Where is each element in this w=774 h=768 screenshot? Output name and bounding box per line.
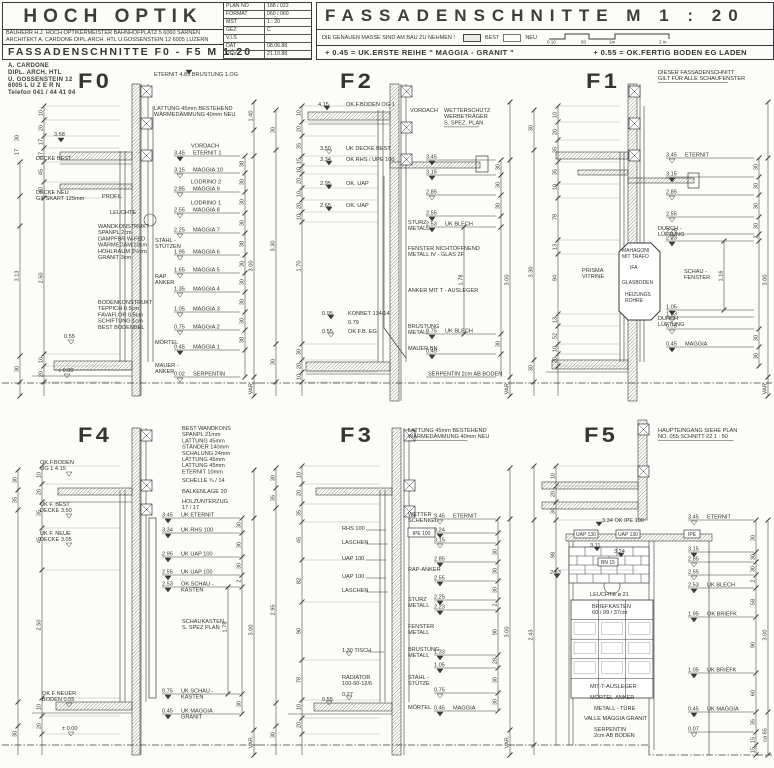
svg-text:10: 10 xyxy=(39,110,45,116)
svg-text:3.15: 3.15 xyxy=(666,172,677,178)
svg-text:BEST WANDKONSSPANPL 21mmLATTUN: BEST WANDKONSSPANPL 21mmLATTUNG 45mmSTÄN… xyxy=(182,426,231,475)
svg-text:30: 30 xyxy=(15,135,21,141)
svg-text:35: 35 xyxy=(297,143,303,149)
dimension-chains: 30352.9530102035458290781020303030290283… xyxy=(271,464,513,758)
svg-text:ETERNIT: ETERNIT xyxy=(707,515,732,521)
svg-text:3.00: 3.00 xyxy=(249,625,255,636)
svg-text:MÖRTEL-ANKER: MÖRTEL-ANKER xyxy=(590,694,634,701)
svg-text:20: 20 xyxy=(39,125,45,131)
svg-text:OK. UAP: OK. UAP xyxy=(346,203,369,209)
svg-text:DIESER FASSADENSCHNITTGILT FÜR: DIESER FASSADENSCHNITTGILT FÜR ALLE SCHA… xyxy=(658,70,745,82)
svg-text:2.50: 2.50 xyxy=(37,620,43,631)
elevation-rows: 3.45VORDACHETERNIT 13.15MAGGIA 102.85LOD… xyxy=(174,144,240,383)
svg-text:0.45: 0.45 xyxy=(162,709,173,715)
svg-text:30: 30 xyxy=(237,522,243,528)
svg-text:KONBET 134/14: KONBET 134/14 xyxy=(348,311,390,317)
svg-text:IFA: IFA xyxy=(630,265,638,271)
svg-text:DECKE BEST: DECKE BEST xyxy=(36,156,72,162)
svg-text:10: 10 xyxy=(553,184,559,190)
svg-text:MAUER BN: MAUER BN xyxy=(408,346,438,352)
svg-text:3.58: 3.58 xyxy=(54,132,65,138)
panel-F2: F2303.30301020351510201020101.7030201030… xyxy=(258,66,516,402)
svg-text:30: 30 xyxy=(751,566,757,572)
svg-text:2.43: 2.43 xyxy=(529,630,535,641)
svg-text:STURZMETALL: STURZMETALL xyxy=(408,597,429,609)
bauherr-line: BAUHERR H.J. HOCH OPTIKERMEISTER BAHNHOF… xyxy=(6,30,220,37)
svg-text:2.85: 2.85 xyxy=(434,557,445,563)
svg-text:MAGGIA 7: MAGGIA 7 xyxy=(193,228,220,234)
svg-text:0.79: 0.79 xyxy=(348,320,359,326)
svg-text:30: 30 xyxy=(237,542,243,548)
svg-text:UK MAGGIA: UK MAGGIA xyxy=(707,707,739,713)
svg-text:LEUCHTE: LEUCHTE xyxy=(110,210,136,216)
svg-text:30: 30 xyxy=(754,183,760,189)
svg-text:IPE 100: IPE 100 xyxy=(413,531,431,537)
annotations: DIESER FASSADENSCHNITTGILT FÜR ALLE SCHA… xyxy=(582,70,745,328)
svg-text:LATTUNG 45mm BESTEHENDWÄRMEDÄM: LATTUNG 45mm BESTEHENDWÄRMEDÄMMUNG 40mm … xyxy=(154,106,235,118)
svg-text:98: 98 xyxy=(551,552,557,558)
svg-text:BODENKONSTRUKTTEPPICH 0.5cmFAV: BODENKONSTRUKTTEPPICH 0.5cmFAVAFLOR 0.5c… xyxy=(98,300,153,331)
svg-text:METALL - TÜRE: METALL - TÜRE xyxy=(594,705,636,712)
svg-text:2.85: 2.85 xyxy=(688,557,699,563)
svg-text:MAGGIA: MAGGIA xyxy=(453,706,476,712)
svg-text:MÖRTEL: MÖRTEL xyxy=(408,704,431,711)
svg-text:2 m: 2 m xyxy=(659,39,667,44)
svg-text:90: 90 xyxy=(297,628,303,634)
svg-text:30: 30 xyxy=(754,353,760,359)
svg-text:1.05: 1.05 xyxy=(174,307,185,313)
legend-label: BEST xyxy=(485,35,499,41)
svg-text:2: 2 xyxy=(493,603,499,606)
svg-text:28: 28 xyxy=(493,658,499,664)
company-logo: HOCH OPTIK xyxy=(3,3,223,30)
svg-text:10: 10 xyxy=(297,374,303,380)
svg-text:30: 30 xyxy=(751,554,757,560)
svg-text:10: 10 xyxy=(553,112,559,118)
svg-text:HOLZUNTERZUG17 / 17: HOLZUNTERZUG17 / 17 xyxy=(182,499,228,511)
svg-text:3.45: 3.45 xyxy=(666,153,677,159)
svg-text:3.15: 3.15 xyxy=(426,170,437,176)
svg-text:OK.F.BODEN OG 1: OK.F.BODEN OG 1 xyxy=(346,102,395,108)
svg-text:3.00: 3.00 xyxy=(249,261,255,272)
svg-text:94: 94 xyxy=(553,275,559,281)
svg-text:3.34 OK IPE 100: 3.34 OK IPE 100 xyxy=(602,518,644,524)
svg-text:OK RHS / UPE 100: OK RHS / UPE 100 xyxy=(346,157,395,163)
svg-text:LODRINO 1: LODRINO 1 xyxy=(191,201,221,207)
panel-F1: F1303.3030102035351078139413521020303030… xyxy=(516,66,772,402)
svg-text:0.45: 0.45 xyxy=(434,706,445,712)
svg-text:35: 35 xyxy=(13,497,19,503)
svg-text:30: 30 xyxy=(271,732,277,738)
svg-text:ETERNIT: ETERNIT xyxy=(453,514,478,520)
svg-text:3.24: 3.24 xyxy=(434,528,445,534)
svg-text:1.30 TISCH: 1.30 TISCH xyxy=(342,648,371,654)
svg-text:WETTERSCHUTZWERBETRÄGERS. SPEZ: WETTERSCHUTZWERBETRÄGERS. SPEZ. PLAN xyxy=(444,108,491,126)
svg-text:LATTUNG 45mm BESTEHENDWÄRMEDÄM: LATTUNG 45mm BESTEHENDWÄRMEDÄMMUNG 40mm … xyxy=(408,428,489,440)
svg-text:30: 30 xyxy=(529,125,535,131)
svg-text:30: 30 xyxy=(529,365,535,371)
panel-F4: F4303530102035452.5010203030302301.783.0… xyxy=(2,410,258,762)
svg-text:45: 45 xyxy=(39,169,45,175)
svg-text:10: 10 xyxy=(297,704,303,710)
svg-text:30: 30 xyxy=(237,563,243,569)
svg-text:30: 30 xyxy=(240,161,246,167)
svg-text:2.25: 2.25 xyxy=(434,595,445,601)
svg-text:45: 45 xyxy=(297,537,303,543)
svg-text:2.53: 2.53 xyxy=(162,582,173,588)
svg-text:10: 10 xyxy=(37,704,43,710)
sheet-title: FASSADENSCHNITTE F0 - F5 M 1:20 xyxy=(3,45,223,59)
svg-text:1.16: 1.16 xyxy=(719,271,725,282)
svg-text:IPE: IPE xyxy=(688,532,697,538)
svg-text:MAGGIA 9: MAGGIA 9 xyxy=(193,187,220,193)
svg-text:UK BLECH: UK BLECH xyxy=(707,583,735,589)
svg-text:0 10: 0 10 xyxy=(547,39,556,44)
svg-text:30: 30 xyxy=(297,349,303,355)
datum-row: + 0.45 = UK.ERSTE REIHE " MAGGIA - GRANI… xyxy=(317,46,773,59)
svg-text:34: 34 xyxy=(551,508,557,514)
svg-text:30: 30 xyxy=(493,587,499,593)
svg-text:0.45: 0.45 xyxy=(688,707,699,713)
svg-text:BRIEFKASTEN60 / 99 / 37cm: BRIEFKASTEN60 / 99 / 37cm xyxy=(592,604,631,616)
svg-text:UK UAP 100: UK UAP 100 xyxy=(181,552,213,558)
svg-text:17: 17 xyxy=(39,139,45,145)
svg-text:20: 20 xyxy=(297,363,303,369)
svg-text:MAGGIA 10: MAGGIA 10 xyxy=(193,168,223,174)
info-value: 08.06.88 xyxy=(265,43,312,51)
svg-text:UAP 100: UAP 100 xyxy=(342,556,364,562)
svg-text:MAGGIA 5: MAGGIA 5 xyxy=(193,268,220,274)
svg-text:20: 20 xyxy=(37,489,43,495)
svg-text:DURCH -LÜFTUNG: DURCH -LÜFTUNG xyxy=(658,226,684,238)
svg-text:UK F. NEUEDECKE 3.05: UK F. NEUEDECKE 3.05 xyxy=(40,531,72,543)
panel-label-F4: F4 xyxy=(78,424,112,448)
svg-text:35: 35 xyxy=(751,719,757,725)
info-value: 21.10.88 xyxy=(265,51,312,59)
svg-text:30: 30 xyxy=(13,731,19,737)
svg-text:17: 17 xyxy=(15,149,21,155)
svg-text:20: 20 xyxy=(297,178,303,184)
svg-text:UK SCHAU -KASTEN: UK SCHAU -KASTEN xyxy=(181,689,213,701)
svg-text:RHS 100: RHS 100 xyxy=(342,526,365,532)
svg-text:30: 30 xyxy=(751,535,757,541)
svg-text:15: 15 xyxy=(751,747,757,753)
svg-text:MAGGIA 4: MAGGIA 4 xyxy=(193,287,220,293)
svg-text:2.55: 2.55 xyxy=(426,211,437,217)
svg-text:1.40: 1.40 xyxy=(249,111,255,122)
svg-text:SERPENTIN2cm AB BODEN: SERPENTIN2cm AB BODEN xyxy=(594,727,635,739)
svg-text:UK BLECH: UK BLECH xyxy=(445,329,473,335)
info-key: DAT xyxy=(224,43,265,51)
svg-text:MAGGIA: MAGGIA xyxy=(685,342,708,348)
panel-drawing-F4: 303530102035452.5010203030302301.783.00V… xyxy=(2,410,258,762)
svg-text:PRISMAVITRINE: PRISMAVITRINE xyxy=(582,268,604,280)
svg-text:SCHAU -FENSTER: SCHAU -FENSTER xyxy=(684,269,710,281)
svg-text:2.85: 2.85 xyxy=(666,190,677,196)
svg-text:RAP-ANKER: RAP-ANKER xyxy=(408,567,441,573)
svg-text:35: 35 xyxy=(553,147,559,153)
svg-text:30: 30 xyxy=(271,475,277,481)
svg-text:2.23: 2.23 xyxy=(434,605,445,611)
svg-text:20: 20 xyxy=(297,203,303,209)
svg-text:20: 20 xyxy=(297,126,303,132)
svg-text:30: 30 xyxy=(237,701,243,707)
svg-text:ETERNIT 1: ETERNIT 1 xyxy=(193,151,222,157)
svg-text:BALKENLAGE 20: BALKENLAGE 20 xyxy=(182,489,227,495)
architekt-line: ARCHITEKT A. CARDONE DIPL.ARCH. HTL U.GO… xyxy=(6,37,220,44)
svg-text:30: 30 xyxy=(493,549,499,555)
info-value: C xyxy=(265,27,312,35)
legend-swatch-neu xyxy=(503,34,521,42)
svg-text:30: 30 xyxy=(496,341,502,347)
svg-text:3.15: 3.15 xyxy=(174,168,185,174)
svg-text:30: 30 xyxy=(240,261,246,267)
svg-text:30: 30 xyxy=(496,203,502,209)
info-key: PLAN NO xyxy=(224,3,265,11)
svg-text:30: 30 xyxy=(240,241,246,247)
svg-text:35: 35 xyxy=(271,495,277,501)
svg-text:WETTER -SCHENKEL: WETTER -SCHENKEL xyxy=(408,512,438,524)
svg-text:LODRINO 2: LODRINO 2 xyxy=(191,180,221,186)
svg-text:LEUCHTE ø 21: LEUCHTE ø 21 xyxy=(590,592,629,598)
svg-text:3.45: 3.45 xyxy=(174,151,185,157)
svg-text:30: 30 xyxy=(13,477,19,483)
svg-text:2.55: 2.55 xyxy=(162,570,173,576)
svg-text:2.95: 2.95 xyxy=(162,552,173,558)
svg-text:10: 10 xyxy=(297,472,303,478)
svg-text:UAP 130: UAP 130 xyxy=(618,532,638,538)
svg-text:MAGGIA 6: MAGGIA 6 xyxy=(193,250,220,256)
svg-text:VALLE MAGGIA GRANIT: VALLE MAGGIA GRANIT xyxy=(584,716,648,722)
legend-label: NEU xyxy=(525,35,537,41)
svg-text:0.02: 0.02 xyxy=(174,372,185,378)
panel-drawing-F2: 303.30301020351510201020101.703020103030… xyxy=(258,66,516,402)
svg-text:RADIATOR100-50-12/6: RADIATOR100-50-12/6 xyxy=(342,675,372,687)
svg-text:VAR.: VAR. xyxy=(763,381,769,394)
svg-text:SERPENTIN: SERPENTIN xyxy=(193,372,225,378)
svg-text:10: 10 xyxy=(39,357,45,363)
svg-text:30: 30 xyxy=(240,279,246,285)
svg-text:RAPANKER: RAPANKER xyxy=(155,274,174,286)
svg-text:10: 10 xyxy=(297,110,303,116)
svg-text:20: 20 xyxy=(551,491,557,497)
svg-text:OK F.B. EG: OK F.B. EG xyxy=(348,329,377,335)
svg-text:VAR.: VAR. xyxy=(505,735,511,748)
svg-text:13: 13 xyxy=(553,317,559,323)
svg-text:BN 15: BN 15 xyxy=(601,560,615,566)
panel-label-F1: F1 xyxy=(586,70,620,94)
svg-text:1.70: 1.70 xyxy=(297,261,303,272)
svg-text:1.05: 1.05 xyxy=(434,663,445,669)
svg-text:78: 78 xyxy=(297,677,303,683)
header-right: FASSADENSCHNITTE M 1 : 20 DIE GENAUEN MA… xyxy=(316,2,774,60)
svg-text:30: 30 xyxy=(493,677,499,683)
svg-text:52: 52 xyxy=(553,333,559,339)
measure-note: DIE GENAUEN MASSE SIND AM BAU ZU NEHMEN … xyxy=(322,35,455,41)
svg-text:MAHAGONIMIT TRAFO: MAHAGONIMIT TRAFO xyxy=(622,248,649,260)
svg-text:0.75: 0.75 xyxy=(434,688,445,694)
svg-text:3.34: 3.34 xyxy=(162,528,173,534)
info-value: 060 / 060 xyxy=(265,11,312,19)
svg-text:20: 20 xyxy=(39,371,45,377)
main-title: FASSADENSCHNITTE M 1 : 20 xyxy=(317,3,773,30)
svg-text:HAUPTEINGANG SIEHE PLANNO. 055: HAUPTEINGANG SIEHE PLANNO. 055 SCHNITT 2… xyxy=(658,428,737,440)
svg-text:30: 30 xyxy=(240,337,246,343)
svg-text:UK ETERNIT: UK ETERNIT xyxy=(181,513,215,519)
svg-text:1.78: 1.78 xyxy=(459,275,465,286)
svg-text:MIT-T-AUSLEGER: MIT-T-AUSLEGER xyxy=(590,684,637,690)
svg-text:1.95: 1.95 xyxy=(688,612,699,618)
elevation-rows: 3.45ETERNIT3.243.152.852.552.252.231.331… xyxy=(434,514,496,717)
datum-right: + 0.55 = OK.FERTIG BODEN EG LADEN xyxy=(593,48,747,57)
svg-text:30: 30 xyxy=(754,164,760,170)
svg-text:30: 30 xyxy=(271,359,277,365)
svg-text:FENSTER NICHTÖFFNENDMETALL: FENSTER NICHTÖFFNENDMETALL IV - GLAS 2F xyxy=(408,245,480,258)
panel-F5: F52.431020349830303025890603515153.00ca … xyxy=(516,410,772,762)
svg-text:10: 10 xyxy=(37,472,43,478)
annotations: IPE 100LATTUNG 45mm BESTEHENDWÄRMEDÄMMUN… xyxy=(322,428,489,711)
svg-text:78: 78 xyxy=(553,214,559,220)
info-key: REV xyxy=(224,51,265,59)
svg-text:1.95: 1.95 xyxy=(174,250,185,256)
svg-text:0.45: 0.45 xyxy=(666,342,677,348)
svg-text:30: 30 xyxy=(493,568,499,574)
svg-text:60: 60 xyxy=(751,690,757,696)
svg-text:3.00: 3.00 xyxy=(763,275,769,286)
svg-text:ETERNIT: ETERNIT xyxy=(685,153,710,159)
svg-text:UK UAP 100: UK UAP 100 xyxy=(181,570,213,576)
svg-text:3.15: 3.15 xyxy=(434,538,445,544)
svg-text:UAP 130: UAP 130 xyxy=(576,532,596,538)
svg-text:2: 2 xyxy=(754,235,760,238)
svg-text:2.25: 2.25 xyxy=(174,228,185,234)
svg-text:2: 2 xyxy=(237,579,243,582)
svg-text:30: 30 xyxy=(496,164,502,170)
svg-text:FENSTERMETALL: FENSTERMETALL xyxy=(408,624,434,636)
svg-text:2.53: 2.53 xyxy=(688,583,699,589)
svg-text:30: 30 xyxy=(754,203,760,209)
svg-text:30: 30 xyxy=(240,318,246,324)
svg-text:OK BRIEFK: OK BRIEFK xyxy=(707,612,737,618)
svg-text:30: 30 xyxy=(15,366,21,372)
svg-text:OK. UAP: OK. UAP xyxy=(346,181,369,187)
svg-text:3.00: 3.00 xyxy=(505,275,511,286)
svg-text:3.13: 3.13 xyxy=(15,271,21,282)
svg-text:58: 58 xyxy=(751,599,757,605)
svg-text:30: 30 xyxy=(493,699,499,705)
svg-text:90: 90 xyxy=(493,629,499,635)
info-key: V.I.S xyxy=(224,35,265,43)
svg-text:3.30: 3.30 xyxy=(271,241,277,252)
svg-text:30: 30 xyxy=(240,220,246,226)
svg-text:1.05: 1.05 xyxy=(666,305,677,311)
svg-text:OK SCHAU -KASTEN: OK SCHAU -KASTEN xyxy=(181,582,214,594)
svg-text:50: 50 xyxy=(581,39,587,44)
svg-text:10: 10 xyxy=(297,167,303,173)
svg-text:10: 10 xyxy=(551,473,557,479)
svg-text:UK RHS 100: UK RHS 100 xyxy=(181,528,213,534)
svg-text:1.65: 1.65 xyxy=(174,268,185,274)
svg-text:ANKER MIT T - AUSLEGER: ANKER MIT T - AUSLEGER xyxy=(408,288,478,294)
svg-text:35: 35 xyxy=(553,169,559,175)
svg-text:82: 82 xyxy=(297,578,303,584)
svg-text:UK BRIEFK: UK BRIEFK xyxy=(707,668,737,674)
svg-text:VAR.: VAR. xyxy=(249,381,255,394)
info-key: FORMAT xyxy=(224,11,265,19)
svg-text:0.07: 0.07 xyxy=(688,727,699,733)
svg-text:3.50: 3.50 xyxy=(320,146,331,152)
svg-text:2: 2 xyxy=(751,579,757,582)
svg-text:90: 90 xyxy=(751,642,757,648)
svg-text:LASCHEN: LASCHEN xyxy=(342,540,368,546)
svg-text:ca 65: ca 65 xyxy=(763,728,769,742)
info-key: MST xyxy=(224,19,265,27)
datum-left: + 0.45 = UK.ERSTE REIHE " MAGGIA - GRANI… xyxy=(325,48,514,57)
svg-text:30: 30 xyxy=(271,127,277,133)
svg-text:10: 10 xyxy=(297,214,303,220)
svg-text:35: 35 xyxy=(297,510,303,516)
panel-drawing-F0: 30173.13301020171745102.5010203030303030… xyxy=(2,66,258,402)
svg-text:STURZMETALL: STURZMETALL xyxy=(408,220,429,232)
panel-label-F0: F0 xyxy=(78,70,112,94)
elevation-rows: 3.45UK ETERNIT3.34UK RHS 1002.95UK UAP 1… xyxy=(162,513,240,721)
svg-text:3.15: 3.15 xyxy=(688,547,699,553)
svg-text:GLASBODEN: GLASBODEN xyxy=(622,280,654,286)
svg-text:2.55: 2.55 xyxy=(666,212,677,218)
info-key: GEZ xyxy=(224,27,265,35)
elevation-rows: 3.45ETERNIT3.152.852.552.53UK BLECH1.95O… xyxy=(688,515,754,738)
svg-text:30: 30 xyxy=(240,199,246,205)
panel-drawing-F3: 30352.9530102035458290781020303030290283… xyxy=(258,410,516,762)
svg-text:0.55: 0.55 xyxy=(322,329,333,335)
svg-text:10: 10 xyxy=(297,191,303,197)
svg-text:10: 10 xyxy=(553,346,559,352)
svg-text:3.00: 3.00 xyxy=(505,627,511,638)
svg-text:MAGGIA 2: MAGGIA 2 xyxy=(193,325,220,331)
panel-label-F3: F3 xyxy=(340,424,374,448)
svg-text:DURCHLÜFTUNG: DURCHLÜFTUNG xyxy=(658,316,684,328)
drawing-sheet: HOCH OPTIK BAUHERR H.J. HOCH OPTIKERMEIS… xyxy=(0,0,774,768)
svg-text:2.55: 2.55 xyxy=(174,208,185,214)
svg-text:± 0.00: ± 0.00 xyxy=(58,368,74,374)
svg-text:30: 30 xyxy=(496,182,502,188)
project-parties: BAUHERR H.J. HOCH OPTIKERMEISTER BAHNHOF… xyxy=(3,30,223,45)
svg-text:OK F NEUERBODEN 0.55: OK F NEUERBODEN 0.55 xyxy=(42,691,76,703)
panel-F3: F330352.95301020354582907810203030302902… xyxy=(258,410,516,762)
svg-text:3.30: 3.30 xyxy=(529,267,535,278)
svg-text:SCHAUKASTENS. SPEZ PLAN: SCHAUKASTENS. SPEZ PLAN xyxy=(182,619,224,631)
svg-text:UK BLECH: UK BLECH xyxy=(445,222,473,228)
svg-text:UK F. BESTDECKE 3.50: UK F. BESTDECKE 3.50 xyxy=(40,502,72,514)
svg-text:LASCHEN: LASCHEN xyxy=(342,588,368,594)
svg-text:3.00: 3.00 xyxy=(763,630,769,641)
svg-text:0.75: 0.75 xyxy=(174,325,185,331)
svg-text:13: 13 xyxy=(553,244,559,250)
svg-text:30: 30 xyxy=(240,179,246,185)
svg-text:1m: 1m xyxy=(609,39,616,44)
svg-text:2.55: 2.55 xyxy=(434,576,445,582)
svg-text:30: 30 xyxy=(754,223,760,229)
svg-text:MÖRTEL: MÖRTEL xyxy=(155,339,178,346)
svg-text:VAR.: VAR. xyxy=(249,735,255,748)
svg-text:1.05: 1.05 xyxy=(688,668,699,674)
svg-text:ETERNIT 4.85 BRUSTUNG 1.O: ETERNIT 4.85 BRUSTUNG 1.OG xyxy=(154,72,238,78)
svg-text:20: 20 xyxy=(297,490,303,496)
svg-text:UK MAGGIAGRANIT: UK MAGGIAGRANIT xyxy=(181,709,213,721)
best-neu-legend: BESTNEU xyxy=(463,34,537,42)
panel-label-F2: F2 xyxy=(340,70,374,94)
svg-text:WANDKONSTRUKTSPANPL 2cmDAMPFBR: WANDKONSTRUKTSPANPL 2cmDAMPFBR W-FEDWÄRM… xyxy=(98,224,150,261)
